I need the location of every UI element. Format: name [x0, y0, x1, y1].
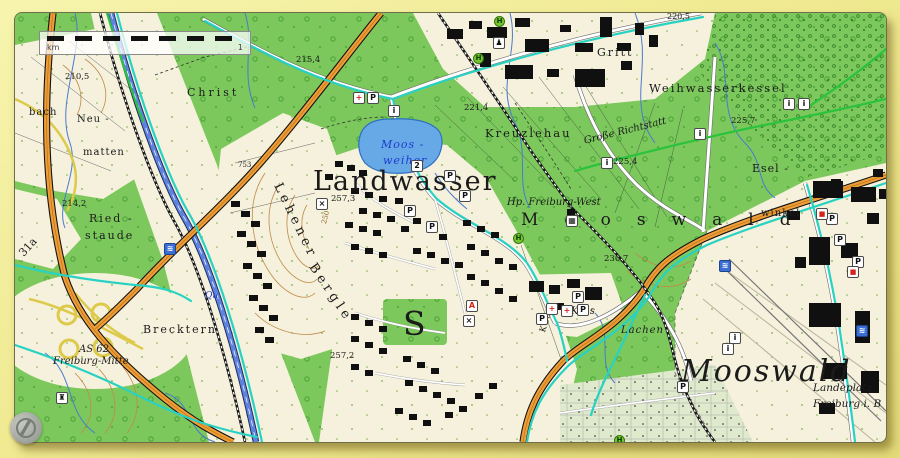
map-canvas[interactable]	[15, 13, 886, 442]
lake-moosweiher	[359, 119, 442, 174]
scale-end-label: 1	[238, 43, 243, 52]
scale-unit-label: km	[47, 43, 59, 52]
globe-watermark-icon	[10, 412, 42, 444]
globe-watermark-detail	[16, 418, 36, 438]
scale-bar: km 1	[39, 31, 251, 55]
scale-bar-segments	[47, 36, 243, 41]
park-patches	[383, 299, 447, 345]
map-window: LandwasserMooswaldMooswaldWeihwasserkess…	[14, 12, 887, 443]
page-background: LandwasserMooswaldMooswaldWeihwasserkess…	[0, 0, 900, 458]
